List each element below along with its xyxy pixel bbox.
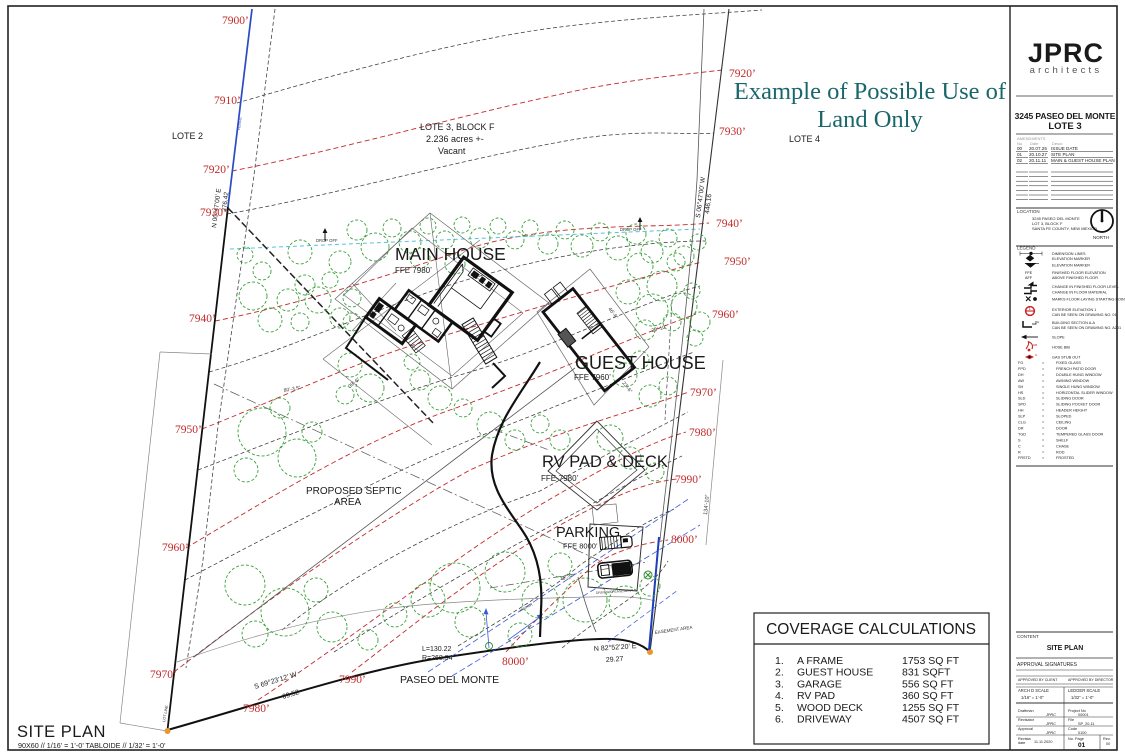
svg-text:No. Page: No. Page: [1068, 737, 1084, 741]
svg-text:7910’: 7910’: [214, 95, 241, 107]
svg-text:6.: 6.: [775, 714, 784, 726]
svg-text:AWNING WINDOW: AWNING WINDOW: [1056, 379, 1090, 383]
svg-text:HOSE BIB: HOSE BIB: [1052, 346, 1070, 350]
svg-text:Rev.: Rev.: [1103, 737, 1111, 741]
svg-text:360 SQ FT: 360 SQ FT: [902, 690, 954, 702]
svg-text:Approval: Approval: [1018, 727, 1033, 731]
svg-text:HS: HS: [1018, 391, 1024, 395]
svg-text:GAS STUB OUT: GAS STUB OUT: [1052, 356, 1081, 360]
svg-text:1255 SQ FT: 1255 SQ FT: [902, 702, 960, 714]
svg-text:ELEVATION MARKER: ELEVATION MARKER: [1052, 264, 1090, 268]
svg-text:1: 1: [1029, 307, 1031, 311]
svg-text:TGD: TGD: [1018, 432, 1026, 436]
svg-text:7940’: 7940’: [716, 218, 743, 230]
svg-text:7990’: 7990’: [339, 674, 366, 686]
svg-text:FPD: FPD: [1018, 367, 1026, 371]
svg-text:90X60 // 1/16’ = 1’-0’ TAB: 90X60 // 1/16’ = 1’-0’ TABLOIDE // 1/32’…: [18, 741, 166, 750]
svg-text:AREA: AREA: [334, 497, 362, 508]
svg-text:7960’: 7960’: [712, 309, 739, 321]
svg-text:ISSUE DATE: ISSUE DATE: [1051, 146, 1078, 151]
svg-text:7950’: 7950’: [175, 424, 202, 436]
svg-text:7980’: 7980’: [689, 427, 716, 439]
svg-text:00001: 00001: [1078, 713, 1089, 717]
svg-text:Draftman: Draftman: [1018, 709, 1034, 713]
svg-text:TEMPERED GLASS DOOR: TEMPERED GLASS DOOR: [1056, 432, 1104, 436]
svg-text:JPRC: JPRC: [1028, 38, 1104, 68]
svg-text:DH: DH: [1018, 373, 1024, 377]
svg-text:Vacant: Vacant: [438, 146, 466, 156]
svg-text:SP_20.11: SP_20.11: [1078, 722, 1094, 726]
svg-text:PASEO DEL MONTE: PASEO DEL MONTE: [400, 674, 499, 686]
svg-text:7920’: 7920’: [203, 164, 230, 176]
svg-text:7920’: 7920’: [729, 68, 756, 80]
svg-text:DR: DR: [1018, 426, 1024, 430]
svg-text:MARKS FLOOR-LAYING STARTING PO: MARKS FLOOR-LAYING STARTING POINT: [1052, 298, 1125, 302]
svg-text:DRIVEWAY: DRIVEWAY: [797, 714, 852, 726]
svg-text:File: File: [1068, 718, 1074, 722]
svg-text:architects: architects: [1030, 65, 1103, 76]
svg-text:LOTE 3, BLOCK F: LOTE 3, BLOCK F: [420, 122, 495, 132]
svg-text:LOCATION: LOCATION: [1017, 209, 1040, 214]
svg-text:1.: 1.: [775, 655, 784, 667]
svg-text:DOUBLE HUNG WINDOW: DOUBLE HUNG WINDOW: [1056, 373, 1102, 377]
svg-text:7940’: 7940’: [189, 313, 216, 325]
svg-text:7990’: 7990’: [675, 474, 702, 486]
svg-text:SLOPED: SLOPED: [1056, 415, 1072, 419]
svg-text:20.11.11: 20.11.11: [1029, 158, 1047, 163]
svg-text:C: C: [1018, 444, 1021, 448]
svg-text:LOTE 2: LOTE 2: [172, 131, 203, 141]
svg-text:JPRC: JPRC: [1045, 722, 1056, 726]
svg-text:MAIN HOUSE: MAIN HOUSE: [395, 244, 506, 264]
svg-text:8000’: 8000’: [502, 656, 529, 668]
svg-text:APPROVED BY CLIENT: APPROVED BY CLIENT: [1018, 678, 1058, 682]
svg-text:1/32” = 1’-0”: 1/32” = 1’-0”: [1071, 695, 1094, 700]
svg-text:SLOPE: SLOPE: [1052, 336, 1065, 340]
svg-text:11.11.2020: 11.11.2020: [1034, 740, 1052, 744]
svg-text:APPROVED BY DIRECTOR: APPROVED BY DIRECTOR: [1068, 678, 1114, 682]
svg-text:DROP OFF: DROP OFF: [316, 238, 338, 243]
svg-text:20.10.27: 20.10.27: [1029, 152, 1047, 157]
svg-text:DOOR: DOOR: [1056, 426, 1068, 430]
svg-text:SLP: SLP: [1018, 415, 1026, 419]
svg-text:7970’: 7970’: [690, 387, 717, 399]
svg-text:02: 02: [1017, 158, 1023, 163]
svg-text:Code: Code: [1068, 727, 1077, 731]
svg-text:HB: HB: [1033, 343, 1037, 347]
svg-text:BUILDING SECTION A-A: BUILDING SECTION A-A: [1052, 321, 1096, 325]
svg-text:WOOD DECK: WOOD DECK: [797, 702, 863, 714]
svg-text:L=130.22: L=130.22: [422, 646, 451, 653]
svg-text:R=268.94: R=268.94: [422, 655, 453, 662]
svg-text:15’-2”: 15’-2”: [560, 575, 574, 582]
svg-text:ROD: ROD: [1056, 450, 1065, 454]
svg-text:5.: 5.: [775, 702, 784, 714]
svg-text:SANTA FE COUNTY, NEW MEXICO: SANTA FE COUNTY, NEW MEXICO: [1032, 226, 1097, 231]
svg-text:7960’: 7960’: [162, 542, 189, 554]
svg-text:29.27: 29.27: [606, 656, 624, 664]
svg-text:FFE 7960’: FFE 7960’: [574, 373, 611, 382]
svg-text:DIMENSION LINES: DIMENSION LINES: [1052, 252, 1086, 256]
svg-text:SPD: SPD: [1018, 403, 1026, 407]
svg-text:CEILING: CEILING: [1056, 421, 1071, 425]
svg-text:CAN BE SEEN ON DRAWING NO. 01: CAN BE SEEN ON DRAWING NO. 01: [1052, 313, 1117, 317]
svg-text:R: R: [1018, 450, 1021, 454]
svg-text:FFE 7980’: FFE 7980’: [395, 266, 432, 275]
svg-text:JPRC: JPRC: [1045, 731, 1056, 735]
svg-text:GUEST HOUSE: GUEST HOUSE: [575, 353, 706, 373]
svg-text:SITE PLAN: SITE PLAN: [1047, 645, 1084, 652]
svg-text:SLIDING POCKET DOOR: SLIDING POCKET DOOR: [1056, 403, 1100, 407]
svg-text:APPROVAL SIGNATURES: APPROVAL SIGNATURES: [1017, 662, 1078, 668]
svg-text:CHANGE IN FINISHED FLOOR LEVEL: CHANGE IN FINISHED FLOOR LEVEL: [1052, 285, 1119, 289]
svg-text:3245 PASEO DEL MONTE: 3245 PASEO DEL MONTE: [1015, 111, 1116, 121]
svg-text:01: 01: [1017, 152, 1023, 157]
svg-text:01: 01: [1078, 742, 1086, 749]
svg-text:LOTE 4: LOTE 4: [789, 134, 820, 144]
svg-text:ARCH D SCALE: ARCH D SCALE: [1018, 688, 1049, 693]
svg-text:LEGEND: LEGEND: [1017, 246, 1036, 251]
svg-text:7980’: 7980’: [243, 703, 270, 715]
svg-text:HH: HH: [1018, 409, 1024, 413]
svg-text:00: 00: [1106, 742, 1110, 746]
svg-text:4.: 4.: [775, 690, 784, 702]
svg-text:FG: FG: [1018, 361, 1023, 365]
svg-text:7970’: 7970’: [150, 669, 177, 681]
svg-text:AW: AW: [1018, 379, 1024, 383]
svg-text:LEDGER SCALE: LEDGER SCALE: [1068, 688, 1100, 693]
svg-text:CLG: CLG: [1018, 421, 1026, 425]
svg-text:00: 00: [1017, 146, 1023, 151]
svg-text:7900’: 7900’: [222, 15, 249, 27]
svg-text:2.: 2.: [775, 667, 784, 679]
svg-text:NORTH: NORTH: [1093, 235, 1109, 240]
svg-text:Example of Possible Use of: Example of Possible Use of: [734, 78, 1007, 105]
svg-text:SLD: SLD: [1018, 397, 1026, 401]
svg-text:1753 SQ FT: 1753 SQ FT: [902, 655, 960, 667]
svg-text:FRSTD: FRSTD: [1018, 456, 1031, 460]
svg-text:ELEVATION MARKER: ELEVATION MARKER: [1052, 257, 1090, 261]
svg-text:GARAGE: GARAGE: [797, 678, 842, 690]
svg-text:COVERAGE CALCULATIONS: COVERAGE CALCULATIONS: [766, 621, 976, 638]
svg-text:DROP OFF: DROP OFF: [620, 227, 642, 232]
svg-text:7930’: 7930’: [200, 207, 227, 219]
svg-text:4507 SQ FT: 4507 SQ FT: [902, 714, 960, 726]
svg-text:GUEST HOUSE: GUEST HOUSE: [797, 667, 873, 679]
svg-text:8000’: 8000’: [671, 534, 698, 546]
svg-text:ABOVE FINISHED FLOOR: ABOVE FINISHED FLOOR: [1052, 276, 1098, 280]
svg-text:HORIZONTAL SLIDER WINDOW: HORIZONTAL SLIDER WINDOW: [1056, 391, 1113, 395]
svg-text:FFE 8000’: FFE 8000’: [563, 542, 598, 551]
svg-text:JPRC: JPRC: [1045, 713, 1056, 717]
svg-text:RV PAD: RV PAD: [797, 690, 836, 702]
svg-text:SITE PLAN: SITE PLAN: [1051, 152, 1075, 157]
svg-text:1/16” = 1’-0”: 1/16” = 1’-0”: [1021, 695, 1044, 700]
svg-text:HEADER HEIGHT: HEADER HEIGHT: [1056, 409, 1088, 413]
svg-text:date: date: [1018, 741, 1025, 745]
svg-text:SITE PLAN: SITE PLAN: [17, 723, 106, 741]
svg-text:7950’: 7950’: [724, 256, 751, 268]
svg-text:A FRAME: A FRAME: [797, 655, 843, 667]
svg-text:EXTERIOR ELEVATION 1: EXTERIOR ELEVATION 1: [1052, 308, 1096, 312]
svg-text:CHANGE IN FLOOR MATERIAL: CHANGE IN FLOOR MATERIAL: [1052, 291, 1107, 295]
svg-text:SLIDING DOOR: SLIDING DOOR: [1056, 397, 1084, 401]
svg-text:556 SQ FT: 556 SQ FT: [902, 678, 954, 690]
svg-text:FINISHED FLOOR ELEVATION: FINISHED FLOOR ELEVATION: [1052, 271, 1106, 275]
svg-text:831 SQFT: 831 SQFT: [902, 667, 951, 679]
svg-text:FFE-7980’: FFE-7980’: [541, 474, 579, 483]
svg-text:Land Only: Land Only: [817, 106, 923, 133]
svg-text:CONTENT: CONTENT: [1017, 634, 1039, 639]
svg-text:Revisator: Revisator: [1018, 718, 1035, 722]
svg-text:CAN BE SEEN ON DRAWING NO. A20: CAN BE SEEN ON DRAWING NO. A201: [1052, 326, 1121, 330]
svg-text:20.07.25: 20.07.25: [1029, 146, 1047, 151]
svg-text:FFE: FFE: [1025, 271, 1033, 275]
svg-text:3.: 3.: [775, 678, 784, 690]
svg-text:FIXED GLASS: FIXED GLASS: [1056, 361, 1081, 365]
svg-text:A: A: [1037, 320, 1039, 324]
svg-text:SINGLE HUNG WINDOW: SINGLE HUNG WINDOW: [1056, 385, 1100, 389]
svg-text:2.236 acres +-: 2.236 acres +-: [426, 134, 484, 144]
svg-text:PROPOSED SEPTIC: PROPOSED SEPTIC: [306, 486, 402, 497]
svg-text:RV PAD & DECK: RV PAD & DECK: [542, 453, 668, 471]
svg-text:FRENCH PATIO DOOR: FRENCH PATIO DOOR: [1056, 367, 1096, 371]
svg-text:LOTE 3: LOTE 3: [1048, 121, 1081, 132]
svg-text:7930’: 7930’: [719, 126, 746, 138]
svg-text:0100: 0100: [1078, 731, 1086, 735]
svg-text:FROSTED: FROSTED: [1056, 456, 1074, 460]
svg-text:SHELF: SHELF: [1056, 438, 1069, 442]
svg-text:AFF: AFF: [1025, 276, 1033, 280]
svg-text:MAIN & GUEST HOUSE PLAN: MAIN & GUEST HOUSE PLAN: [1051, 158, 1115, 163]
svg-text:CHASE: CHASE: [1056, 444, 1070, 448]
svg-text:SH: SH: [1018, 385, 1024, 389]
